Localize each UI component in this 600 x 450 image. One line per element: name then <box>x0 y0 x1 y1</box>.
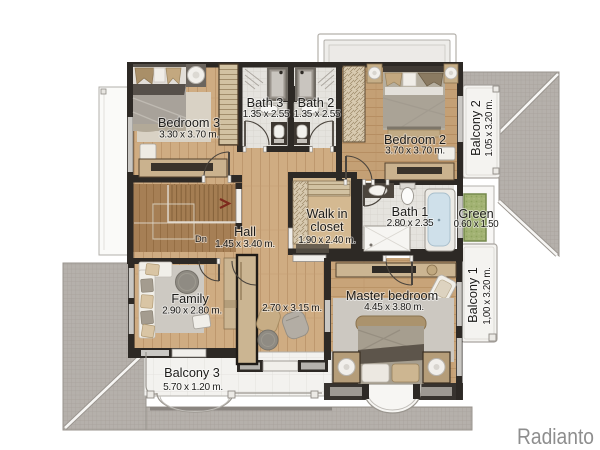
svg-text:1.90 x 2.40 m.: 1.90 x 2.40 m. <box>298 235 355 246</box>
svg-text:Bath 1: Bath 1 <box>392 205 429 219</box>
svg-text:Hall: Hall <box>234 225 256 239</box>
svg-text:1.05 x 3.20 m.: 1.05 x 3.20 m. <box>484 99 495 156</box>
svg-text:5.70 x 1.20 m.: 5.70 x 1.20 m. <box>163 382 223 393</box>
svg-text:Balcony 2: Balcony 2 <box>469 100 483 156</box>
svg-text:2.70 x 3.15 m.: 2.70 x 3.15 m. <box>262 303 322 314</box>
svg-text:Balcony 1: Balcony 1 <box>466 267 480 323</box>
svg-text:Radianto: Radianto <box>517 424 594 449</box>
svg-text:1.35 x 2.55: 1.35 x 2.55 <box>294 109 341 120</box>
svg-text:Walk in: Walk in <box>306 207 347 221</box>
svg-text:1.45 x 3.40 m.: 1.45 x 3.40 m. <box>215 239 275 250</box>
svg-text:0.60 x 1.50: 0.60 x 1.50 <box>454 219 500 230</box>
svg-text:Master bedroom: Master bedroom <box>346 289 438 303</box>
svg-text:1,00 x 3.20 m.: 1,00 x 3.20 m. <box>482 267 493 324</box>
svg-text:Family: Family <box>171 292 209 306</box>
svg-text:Bath 3: Bath 3 <box>247 96 284 110</box>
svg-text:Bedroom 3: Bedroom 3 <box>158 116 220 130</box>
svg-text:Balcony 3: Balcony 3 <box>164 366 220 380</box>
svg-text:Dn: Dn <box>195 234 207 244</box>
svg-text:4.45 x 3.80 m.: 4.45 x 3.80 m. <box>364 302 424 313</box>
svg-text:3.70 x 3.70 m.: 3.70 x 3.70 m. <box>385 146 445 157</box>
svg-text:2.80 x 2.35: 2.80 x 2.35 <box>387 218 434 229</box>
svg-text:2.90 x 2.80 m.: 2.90 x 2.80 m. <box>162 306 222 317</box>
svg-text:closet: closet <box>310 220 344 234</box>
svg-text:Bath 2: Bath 2 <box>298 96 335 110</box>
svg-text:3.30 x 3.70 m.: 3.30 x 3.70 m. <box>159 130 219 141</box>
svg-text:1.35 x 2.55: 1.35 x 2.55 <box>243 109 290 120</box>
